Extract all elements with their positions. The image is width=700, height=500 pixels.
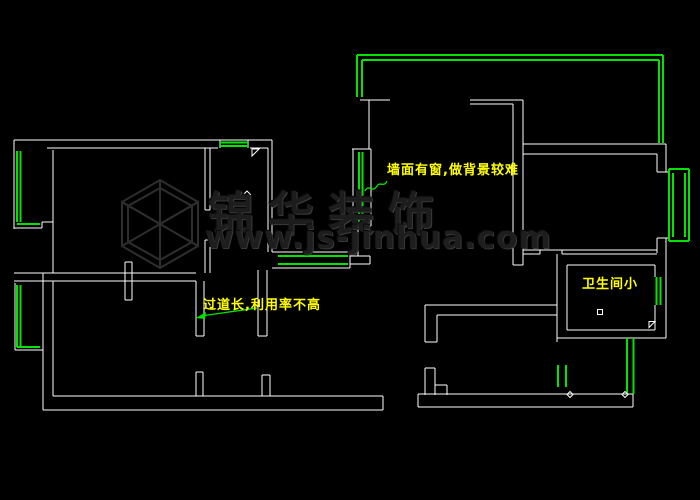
annotation-corridor: 过道长,利用率不高 xyxy=(203,299,321,313)
watermark-website: www.js-jinhua.com xyxy=(205,220,552,256)
door-triangle-icon xyxy=(649,322,655,328)
cad-canvas[interactable]: 锦华装饰 www.js-jinhua.com 墙面有窗,做背景较难 过道长,利用… xyxy=(0,0,700,500)
annotation-bathroom: 卫生间小 xyxy=(582,278,638,292)
door-square-icon xyxy=(598,310,603,315)
watermark-logo-cube-icon xyxy=(122,180,198,268)
corridor-annotation-arrowhead xyxy=(196,312,206,319)
door-triangle-icon xyxy=(252,149,259,156)
annotation-wall-window: 墙面有窗,做背景较难 xyxy=(387,164,519,178)
